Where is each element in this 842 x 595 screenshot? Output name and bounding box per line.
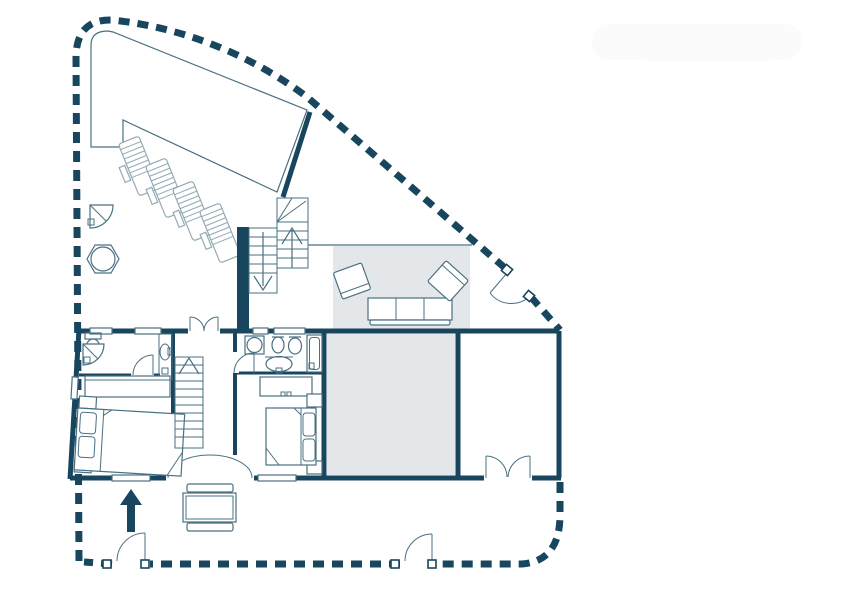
fence-post — [391, 560, 399, 568]
entry-porch — [120, 484, 236, 532]
bed-frame — [74, 408, 184, 476]
bench — [187, 523, 233, 531]
window — [274, 328, 305, 334]
stair-down-arrow — [254, 232, 272, 290]
fence-post — [103, 560, 111, 568]
dresser — [85, 376, 170, 397]
bidet — [272, 337, 284, 353]
window — [112, 475, 150, 481]
garage-door — [484, 456, 532, 483]
bed — [74, 396, 185, 478]
fence-post — [428, 560, 436, 568]
picnic-table — [183, 484, 236, 531]
nightstand — [307, 394, 322, 407]
sun-loungers — [111, 136, 241, 266]
round-basin — [247, 338, 262, 353]
door-left-bath — [131, 355, 154, 379]
shaded-room — [327, 334, 455, 475]
bedroom-left — [74, 376, 185, 478]
gate-door-upper — [490, 264, 535, 303]
basin-counter — [245, 336, 264, 354]
stair-up-arrow — [179, 358, 199, 374]
floor-plan-drawing — [0, 0, 842, 595]
spa-table — [87, 245, 119, 273]
window — [258, 475, 296, 481]
outdoor-shower — [88, 205, 113, 228]
sofa — [368, 298, 452, 325]
basin-niche — [159, 334, 172, 380]
double-swing-door-courtyard — [188, 317, 220, 335]
upper-stairs — [237, 198, 308, 330]
floor-plan-canvas — [0, 0, 842, 595]
vanity-sink — [265, 357, 293, 374]
stair-up-arrow — [282, 228, 302, 268]
dresser — [260, 377, 312, 396]
window — [253, 328, 268, 334]
nightstand — [79, 396, 97, 409]
gate-door-left — [103, 533, 149, 568]
watermark-blob — [592, 24, 802, 61]
bathroom-middle — [245, 335, 322, 373]
window-left-wall — [71, 377, 78, 399]
washbasin — [266, 357, 292, 372]
gate-door-middle — [391, 534, 436, 568]
entry-arrow — [120, 489, 142, 532]
fence-post — [141, 560, 149, 568]
window — [135, 328, 161, 334]
bedroom-middle — [260, 377, 322, 474]
shower — [307, 335, 322, 372]
toilet — [289, 338, 302, 354]
stair-wall — [237, 227, 249, 330]
bathroom-left — [83, 333, 172, 380]
pool-wall — [283, 112, 310, 197]
corner-shower — [83, 344, 104, 365]
bench — [187, 484, 233, 492]
bed — [266, 408, 316, 465]
table — [183, 493, 236, 522]
door-hall-to-bath — [231, 352, 254, 373]
